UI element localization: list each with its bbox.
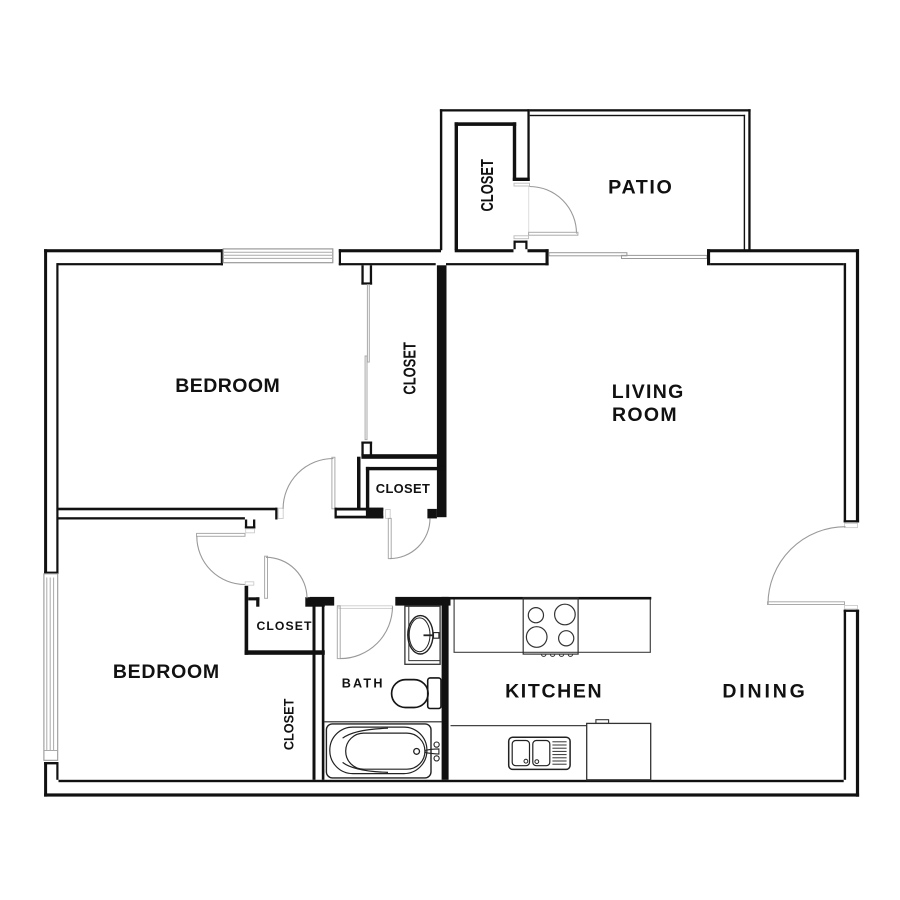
svg-text:KITCHEN: KITCHEN [505, 681, 603, 703]
svg-text:CLOSET: CLOSET [256, 619, 312, 633]
svg-text:BATH: BATH [342, 676, 385, 690]
svg-text:DINING: DINING [722, 681, 807, 703]
svg-text:CLOSET: CLOSET [478, 159, 497, 212]
svg-text:CLOSET: CLOSET [281, 699, 296, 750]
svg-text:CLOSET: CLOSET [376, 481, 430, 496]
svg-text:CLOSET: CLOSET [401, 342, 420, 395]
svg-text:BEDROOM: BEDROOM [113, 661, 220, 683]
svg-text:BEDROOM: BEDROOM [175, 375, 280, 397]
svg-text:LIVING: LIVING [612, 381, 685, 403]
svg-text:PATIO: PATIO [608, 177, 673, 199]
svg-text:ROOM: ROOM [612, 404, 678, 426]
